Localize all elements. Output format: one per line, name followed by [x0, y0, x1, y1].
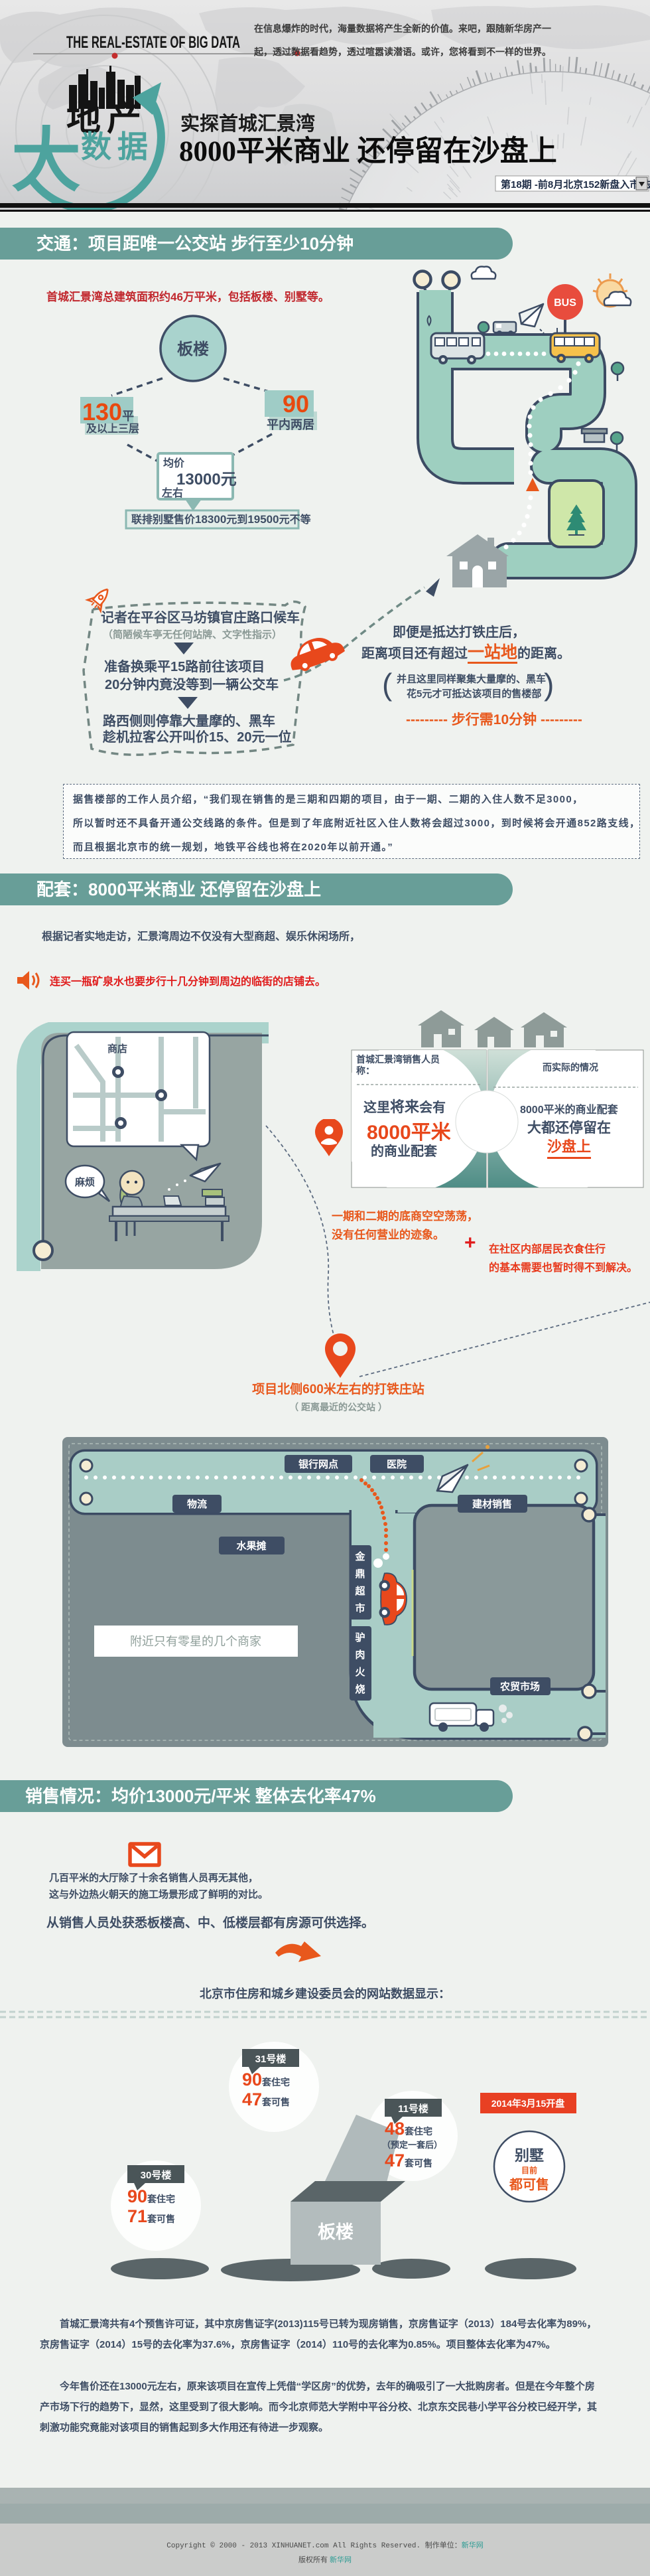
svg-text:平内两居: 平内两居 [267, 417, 314, 431]
svg-text:数据: 数据 [81, 129, 154, 164]
svg-text:目前: 目前 [521, 2165, 537, 2175]
svg-text:及以上三层: 及以上三层 [86, 423, 139, 435]
svg-text:均价: 均价 [163, 457, 185, 469]
svg-text:13000元: 13000元 [176, 471, 237, 489]
svg-text:左右: 左右 [161, 487, 183, 499]
svg-text:THE REAL-ESTATE OF BIG DATA: THE REAL-ESTATE OF BIG DATA [66, 33, 240, 52]
svg-text:起，透过数据看趋势，透过喧嚣读潜语。或许，您将看到不一样的世: 起，透过数据看趋势，透过喧嚣读潜语。或许，您将看到不一样的世界。 [253, 46, 551, 57]
svg-text:农贸市场: 农贸市场 [499, 1681, 540, 1693]
svg-text:2014年3月15开盘: 2014年3月15开盘 [491, 2098, 565, 2109]
svg-text:第18期 -前8月北京152新盘入市 去化: 第18期 -前8月北京152新盘入市 去化 [501, 179, 650, 190]
svg-text:11号楼: 11号楼 [398, 2103, 428, 2115]
svg-text:板楼: 板楼 [318, 2222, 354, 2242]
svg-text:31号楼: 31号楼 [255, 2053, 287, 2065]
svg-text:水果摊: 水果摊 [236, 1540, 266, 1552]
svg-text:银行网点: 银行网点 [298, 1458, 338, 1470]
svg-text:联排别墅售价18300元到19500元不等: 联排别墅售价18300元到19500元不等 [131, 513, 311, 526]
svg-text:别墅: 别墅 [514, 2147, 544, 2164]
svg-text:商店: 商店 [107, 1043, 127, 1055]
svg-text:实探首城汇景湾: 实探首城汇景湾 [180, 112, 315, 135]
svg-text:（预定一套后）: （预定一套后） [382, 2140, 442, 2150]
svg-text:8000平米商业 还停留在沙盘上: 8000平米商业 还停留在沙盘上 [179, 135, 557, 167]
svg-text:建材销售: 建材销售 [472, 1498, 512, 1510]
svg-text:附近只有零星的几个商家: 附近只有零星的几个商家 [130, 1635, 261, 1648]
svg-text:都可售: 都可售 [509, 2176, 549, 2192]
svg-text:大: 大 [11, 122, 81, 200]
svg-text:90: 90 [283, 390, 309, 417]
svg-text:物流: 物流 [187, 1498, 207, 1510]
svg-text:麻烦: 麻烦 [74, 1176, 95, 1188]
svg-text:30号楼: 30号楼 [141, 2169, 172, 2181]
svg-text:BUS: BUS [554, 297, 576, 309]
svg-text:医院: 医院 [387, 1458, 407, 1470]
svg-text:板楼: 板楼 [177, 341, 209, 358]
svg-text:在信息爆炸的时代，海量数据将产生全新的价值。来吧，跟随新华房: 在信息爆炸的时代，海量数据将产生全新的价值。来吧，跟随新华房产一 [254, 23, 551, 34]
